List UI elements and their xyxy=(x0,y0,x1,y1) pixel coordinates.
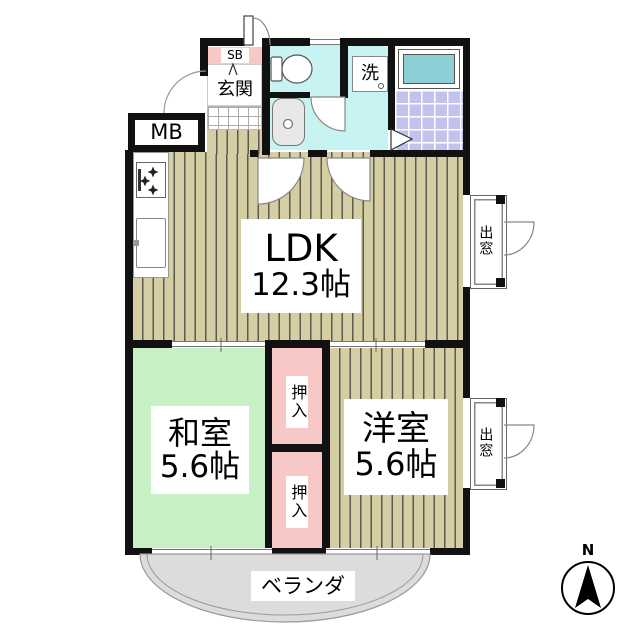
stove-bar xyxy=(138,169,141,191)
label-compass-north: N xyxy=(578,542,598,560)
label-japanese-room: 和室 5.6帖 xyxy=(151,406,249,494)
meter-box-label: MB xyxy=(150,121,183,143)
western-room-name: 洋室 xyxy=(362,412,430,448)
label-closet-upper: 押入 xyxy=(286,376,308,428)
label-western-room: 洋室 5.6帖 xyxy=(344,399,448,495)
label-bay-window-upper: 出窓 xyxy=(476,213,494,269)
ldk-name: LDK xyxy=(264,230,337,269)
washer-label: 洗 xyxy=(361,65,379,84)
bath-door-marker xyxy=(391,129,412,150)
label-entrance: 玄関 xyxy=(209,77,261,103)
plan-linework xyxy=(0,0,640,640)
burner-icon xyxy=(148,167,159,178)
porch-door-arc xyxy=(164,71,206,113)
label-bay-window-lower: 出窓 xyxy=(476,415,494,471)
toilet-tank xyxy=(271,57,282,81)
floor-plan: LDK 12.3帖 和室 5.6帖 洋室 5.6帖 玄関 SB MB 洗 押入 … xyxy=(0,0,640,640)
closet-lower-label: 押入 xyxy=(289,484,306,520)
ldk-size: 12.3帖 xyxy=(251,269,351,302)
label-washer: 洗 xyxy=(352,56,388,92)
bay-window-upper-label: 出窓 xyxy=(478,225,493,257)
closet-upper-label: 押入 xyxy=(289,384,306,420)
entrance-name: 玄関 xyxy=(217,81,253,100)
label-closet-lower: 押入 xyxy=(286,476,308,528)
entry-door-leaf xyxy=(244,16,253,45)
burner-icon xyxy=(140,176,151,187)
basin-drain xyxy=(284,120,293,129)
japanese-room-name: 和室 xyxy=(168,417,232,451)
label-ldk: LDK 12.3帖 xyxy=(241,219,361,313)
label-meter-box: MB xyxy=(128,113,205,152)
bay-casement-upper xyxy=(504,222,534,255)
toilet-bowl xyxy=(282,55,312,83)
burner-icon xyxy=(148,185,159,196)
toilet-door-arc xyxy=(311,97,345,131)
label-veranda: ベランダ xyxy=(251,571,355,601)
label-shoe-box: SB xyxy=(221,48,249,63)
bay-window-lower-label: 出窓 xyxy=(478,427,493,459)
step-chevron xyxy=(229,64,237,75)
bay-casement-lower xyxy=(504,425,534,458)
shoe-box-label: SB xyxy=(227,49,243,62)
hall-door-arc xyxy=(327,158,370,201)
entry-door-arc xyxy=(253,18,270,45)
compass-north-label: N xyxy=(582,543,595,559)
japanese-room-size: 5.6帖 xyxy=(160,451,240,484)
veranda-label: ベランダ xyxy=(261,575,345,597)
western-room-size: 5.6帖 xyxy=(355,448,438,482)
washroom-door-arc xyxy=(258,158,304,204)
